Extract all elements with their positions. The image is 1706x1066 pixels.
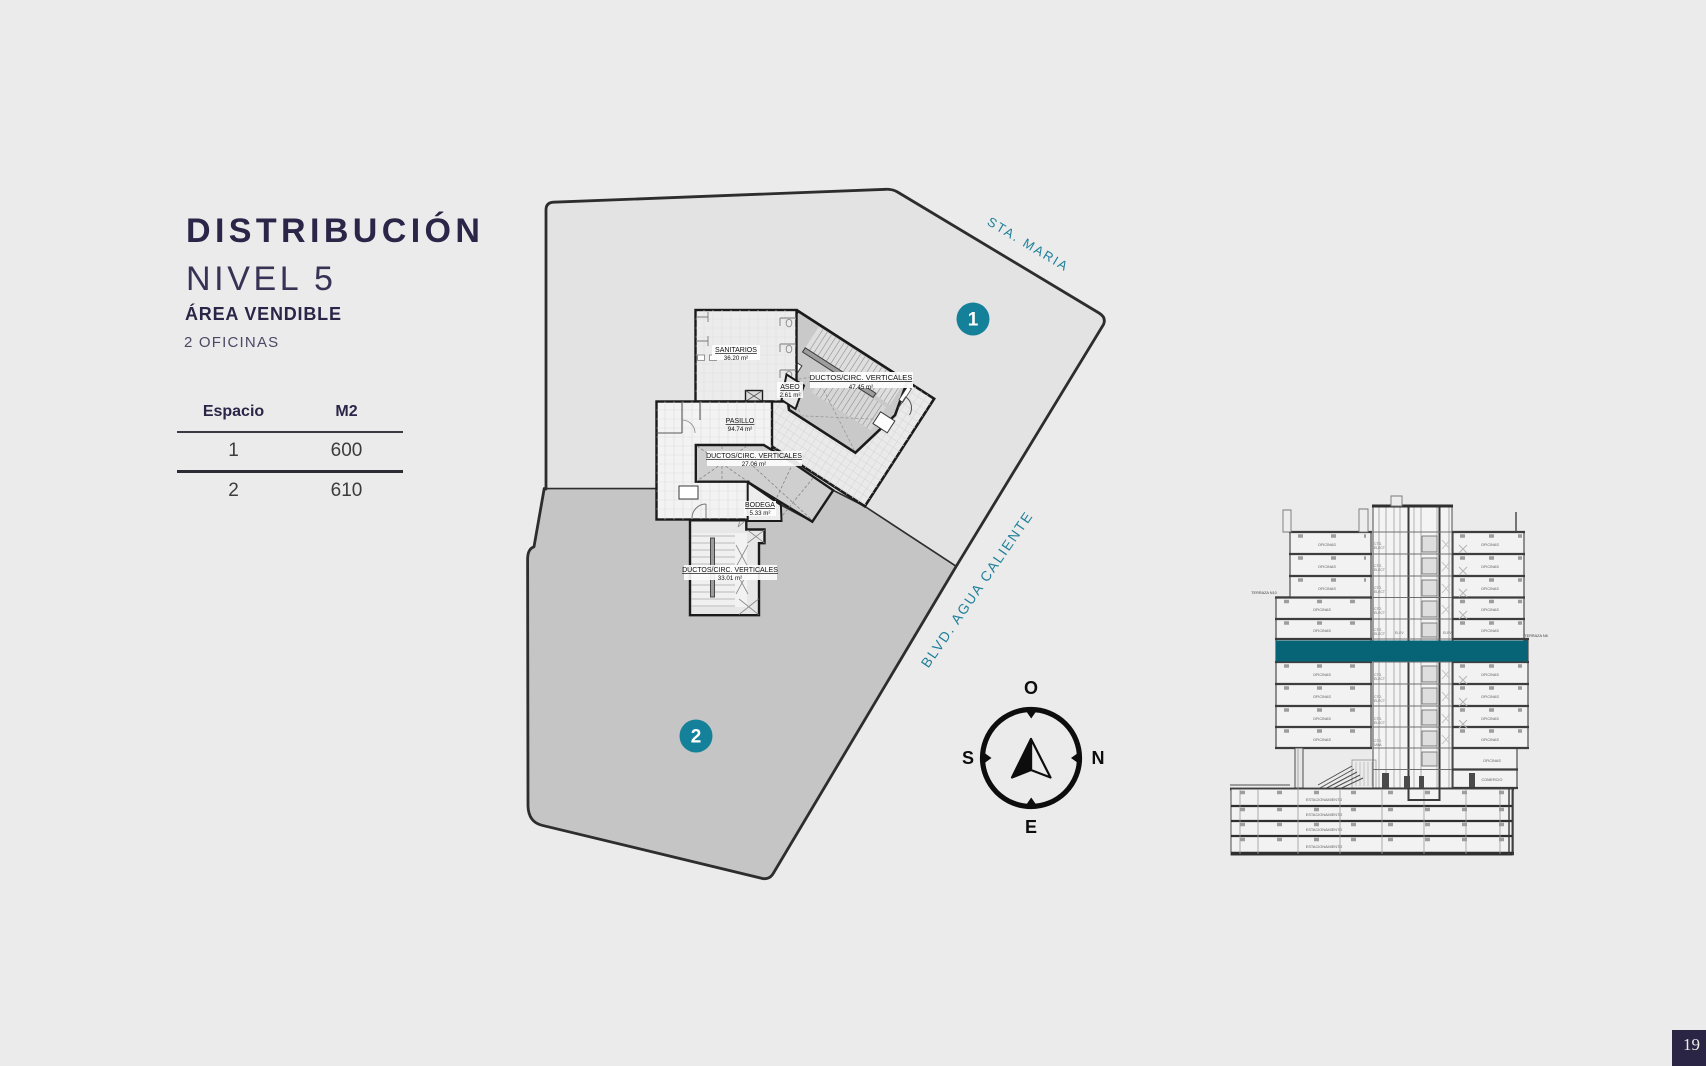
svg-text:UMA: UMA	[1374, 743, 1382, 747]
svg-text:OFICINAS: OFICINAS	[1313, 629, 1331, 633]
svg-text:ELECT: ELECT	[1374, 721, 1385, 725]
svg-text:COMERCIO: COMERCIO	[1482, 778, 1503, 782]
svg-text:ELECT: ELECT	[1374, 677, 1385, 681]
svg-text:ESTACIONAMIENTO: ESTACIONAMIENTO	[1306, 798, 1342, 802]
svg-text:OFICINAS: OFICINAS	[1313, 717, 1331, 721]
svg-text:O: O	[1024, 678, 1038, 698]
svg-text:OFICINAS: OFICINAS	[1318, 565, 1336, 569]
svg-text:2.61 m²: 2.61 m²	[780, 392, 801, 399]
svg-text:ELECT: ELECT	[1374, 632, 1385, 636]
svg-text:OFICINAS: OFICINAS	[1313, 608, 1331, 612]
svg-text:DUCTOS/CIRC. VERTICALES: DUCTOS/CIRC. VERTICALES	[706, 453, 802, 460]
svg-text:5.33 m²: 5.33 m²	[750, 510, 771, 517]
svg-text:ELEV: ELEV	[1443, 631, 1452, 635]
svg-text:ELECT: ELECT	[1374, 611, 1385, 615]
svg-text:TERRAZA N10: TERRAZA N10	[1251, 591, 1277, 595]
svg-text:ELECT: ELECT	[1374, 568, 1385, 572]
svg-text:DUCTOS/CIRC. VERTICALES: DUCTOS/CIRC. VERTICALES	[810, 373, 913, 382]
svg-text:ELEV: ELEV	[1395, 631, 1404, 635]
svg-text:ESTACIONAMIENTO: ESTACIONAMIENTO	[1306, 813, 1342, 817]
svg-text:PASILLO: PASILLO	[726, 418, 755, 425]
svg-text:ESTACIONAMIENTO: ESTACIONAMIENTO	[1306, 828, 1342, 832]
svg-text:OFICINAS: OFICINAS	[1481, 738, 1499, 742]
svg-text:ELECT: ELECT	[1374, 590, 1385, 594]
svg-text:OFICINAS: OFICINAS	[1313, 695, 1331, 699]
svg-text:27.06 m²: 27.06 m²	[742, 461, 766, 468]
svg-text:DUCTOS/CIRC. VERTICALES: DUCTOS/CIRC. VERTICALES	[682, 567, 778, 574]
svg-text:OFICINAS: OFICINAS	[1318, 587, 1336, 591]
svg-text:OFICINAS: OFICINAS	[1481, 587, 1499, 591]
svg-text:OFICINAS: OFICINAS	[1481, 695, 1499, 699]
svg-text:OFICINAS: OFICINAS	[1318, 543, 1336, 547]
svg-text:OFICINAS: OFICINAS	[1481, 565, 1499, 569]
svg-text:BODEGA: BODEGA	[745, 502, 775, 509]
svg-text:OFICINAS: OFICINAS	[1481, 543, 1499, 547]
svg-text:ASEO: ASEO	[780, 384, 800, 391]
svg-text:OFICINAS: OFICINAS	[1481, 673, 1499, 677]
svg-text:OFICINAS: OFICINAS	[1481, 717, 1499, 721]
svg-text:SANITARIOS: SANITARIOS	[715, 347, 757, 354]
svg-text:ELECT: ELECT	[1374, 546, 1385, 550]
svg-text:33.01 m²: 33.01 m²	[718, 575, 742, 582]
svg-text:OFICINAS: OFICINAS	[1481, 608, 1499, 612]
svg-text:OFICINAS: OFICINAS	[1481, 629, 1499, 633]
svg-text:OFICINAS: OFICINAS	[1313, 738, 1331, 742]
svg-text:OFICINAS: OFICINAS	[1483, 759, 1501, 763]
svg-text:S: S	[962, 748, 974, 768]
svg-text:94.74 m²: 94.74 m²	[728, 426, 752, 433]
svg-text:2: 2	[691, 727, 702, 748]
svg-text:ESTACIONAMIENTO: ESTACIONAMIENTO	[1306, 845, 1342, 849]
svg-text:47.45 m²: 47.45 m²	[849, 384, 873, 391]
svg-text:TERRAZA N6: TERRAZA N6	[1524, 634, 1547, 638]
svg-text:1: 1	[968, 310, 979, 331]
svg-text:N: N	[1092, 748, 1105, 768]
svg-text:E: E	[1025, 817, 1037, 837]
svg-text:36.20 m²: 36.20 m²	[724, 355, 748, 362]
svg-text:ELECT: ELECT	[1374, 699, 1385, 703]
svg-text:OFICINAS: OFICINAS	[1313, 673, 1331, 677]
